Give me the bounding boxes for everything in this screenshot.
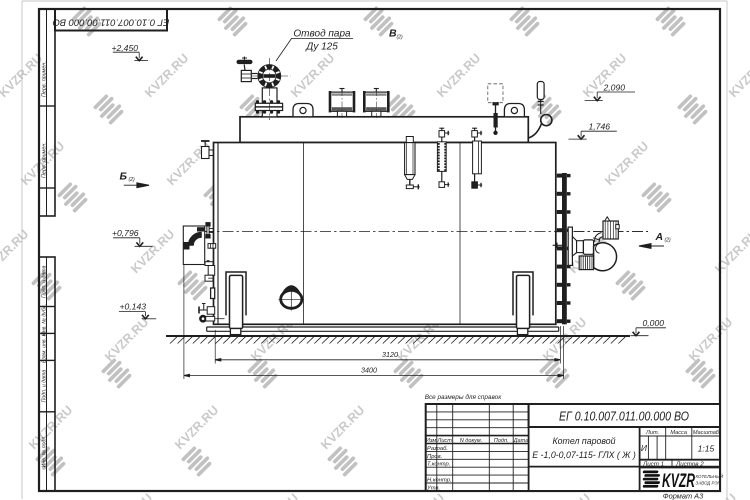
svg-text:Лист: Лист bbox=[436, 438, 452, 444]
svg-text:Т.контр.: Т.контр. bbox=[427, 462, 450, 468]
svg-text:Масштаб: Масштаб bbox=[693, 430, 720, 436]
svg-text:Взам. инв. №: Взам. инв. № bbox=[41, 330, 47, 362]
svg-text:ЕГ 0.10.007.011.00.000 ВО: ЕГ 0.10.007.011.00.000 ВО bbox=[52, 17, 169, 28]
svg-text:А: А bbox=[655, 231, 664, 243]
svg-text:Подп. и дата: Подп. и дата bbox=[41, 370, 47, 403]
svg-text:Пров.: Пров. bbox=[427, 454, 442, 460]
svg-text:Котел паровой: Котел паровой bbox=[552, 436, 615, 446]
svg-text:Ду 125: Ду 125 bbox=[305, 42, 338, 53]
svg-text:Изм: Изм bbox=[426, 438, 437, 444]
svg-text:Масса: Масса bbox=[670, 430, 687, 436]
svg-text:Н.контр.: Н.контр. bbox=[427, 478, 452, 484]
svg-text:КОТЕЛЬНЫЙ: КОТЕЛЬНЫЙ bbox=[696, 474, 724, 479]
svg-text:Б: Б bbox=[120, 171, 128, 183]
svg-text:KVZR: KVZR bbox=[662, 471, 695, 492]
svg-text:Формат А3: Формат А3 bbox=[663, 492, 704, 500]
svg-text:3120: 3120 bbox=[382, 350, 398, 359]
svg-text:Листов 2: Листов 2 bbox=[675, 461, 704, 468]
svg-text:1:15: 1:15 bbox=[698, 444, 715, 454]
svg-text:Подп.: Подп. bbox=[494, 438, 509, 444]
svg-text:2,090: 2,090 bbox=[603, 83, 626, 93]
svg-text:Отвод пара: Отвод пара bbox=[293, 29, 351, 40]
svg-text:Дата: Дата bbox=[513, 438, 529, 444]
svg-text:Утв.: Утв. bbox=[426, 485, 440, 491]
svg-text:Все размеры для справок: Все размеры для справок bbox=[425, 393, 503, 401]
svg-text:И: И bbox=[641, 443, 648, 453]
svg-text:(2): (2) bbox=[129, 177, 135, 183]
svg-text:Лист 1: Лист 1 bbox=[642, 461, 664, 468]
svg-text:(2): (2) bbox=[665, 238, 671, 244]
svg-text:Лит.: Лит. bbox=[645, 430, 659, 436]
svg-text:ЕГ 0.10.007.011.00.000 ВО: ЕГ 0.10.007.011.00.000 ВО bbox=[559, 409, 689, 424]
svg-text:Е -1,0-0,07-115- ГЛХ ( Ж ): Е -1,0-0,07-115- ГЛХ ( Ж ) bbox=[532, 450, 636, 460]
svg-text:Инв. № подл.: Инв. № подл. bbox=[41, 435, 47, 467]
svg-text:N докум.: N докум. bbox=[460, 438, 483, 444]
svg-text:Разраб.: Разраб. bbox=[427, 446, 448, 452]
svg-text:ЗАВОД РЭП: ЗАВОД РЭП bbox=[696, 481, 722, 486]
svg-text:Перв. примен.: Перв. примен. bbox=[41, 142, 47, 178]
svg-text:+0,143: +0,143 bbox=[120, 302, 147, 312]
svg-text:1,746: 1,746 bbox=[589, 122, 611, 132]
svg-text:(2): (2) bbox=[397, 35, 403, 41]
svg-text:Подп. и дата: Подп. и дата bbox=[41, 265, 47, 298]
svg-text:3400: 3400 bbox=[361, 366, 377, 375]
svg-text:+2,450: +2,450 bbox=[112, 43, 139, 53]
svg-text:0,000: 0,000 bbox=[643, 318, 665, 328]
svg-text:+0,796: +0,796 bbox=[112, 228, 139, 238]
svg-text:Перв. примен.: Перв. примен. bbox=[41, 61, 47, 97]
